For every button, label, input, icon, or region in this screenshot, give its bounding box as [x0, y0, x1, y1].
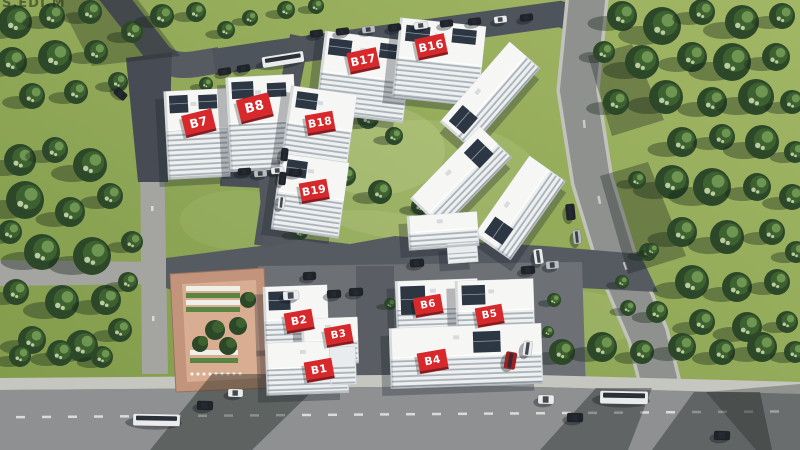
lane-dash: [510, 412, 519, 415]
lane-dash: [68, 415, 77, 418]
social-courtyard: [170, 268, 270, 392]
lane-dash: [432, 413, 441, 416]
lane-dash: [328, 414, 337, 417]
sunbed-dot: [196, 372, 199, 375]
lane-dash: [536, 412, 545, 415]
building-B4: [380, 323, 543, 396]
lane-dash: [458, 413, 467, 416]
lane-dash: [94, 415, 103, 418]
lane-dash: [16, 416, 25, 419]
sunbed-dot: [202, 372, 205, 375]
aerial-site-render: B7B8B17B16B18B19B2B3B1B6B5B4 S.EDI.M: [0, 0, 800, 450]
lane-dash: [42, 416, 51, 419]
lane-dash: [302, 414, 311, 417]
glass-roof: [295, 91, 318, 110]
watermark: S.EDI.M: [2, 0, 66, 11]
sunbed-dot: [190, 372, 193, 375]
lane-dash: [666, 411, 675, 414]
lane-dash: [120, 415, 129, 418]
lane-dash: [484, 412, 493, 415]
lane-dash: [406, 413, 415, 416]
lane-dash: [380, 413, 389, 416]
lane-dash: [354, 413, 363, 416]
